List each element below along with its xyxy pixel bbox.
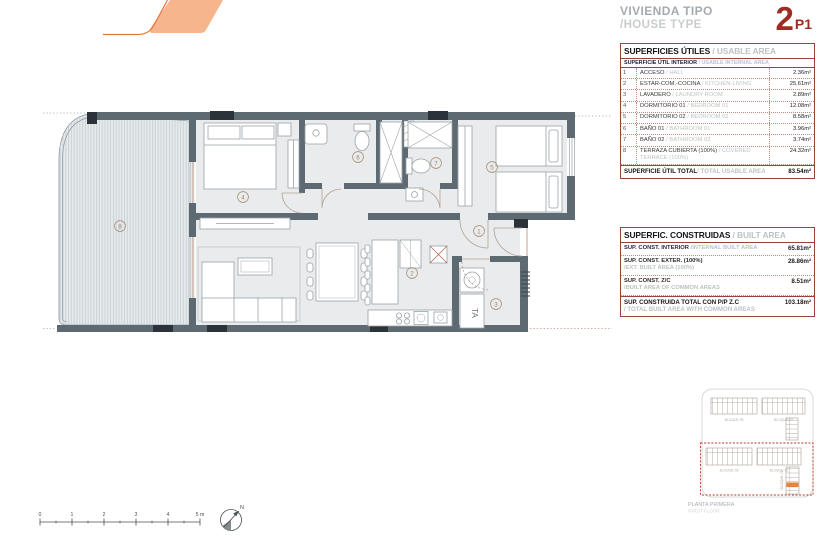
svg-text:3: 3 <box>494 301 498 308</box>
page-title-en: /HOUSE TYPE <box>620 19 713 32</box>
unit-badge: 2 P1 <box>776 5 812 33</box>
svg-text:BLOQUE 01: BLOQUE 01 <box>780 470 784 489</box>
brand-logo <box>103 0 223 35</box>
table-row: 3LAVADERO / LAUNDRY ROOM2.89m² <box>621 90 814 101</box>
table-row: 7BAÑO 02 / BATHROOM 023.74m² <box>621 135 814 146</box>
table-row: 5DORMITORIO 02 / BEDROOM 028.58m² <box>621 113 814 124</box>
usable-table-header: SUPERFICIES ÚTILES / USABLE AREA <box>621 44 814 59</box>
laundry-tag: TA <box>470 308 479 318</box>
terrace-window-2 <box>191 237 194 298</box>
site-caption-en: /FIRST FLOOR <box>688 509 720 514</box>
svg-text:1: 1 <box>71 512 74 518</box>
scale-bar: 0 1 2 3 4 5 m <box>39 512 205 526</box>
table-row: 1ACCESO / HALL2.36m² <box>621 68 814 79</box>
svg-text:5 m: 5 m <box>196 512 205 518</box>
floor-plan: TA 8 4 6 7 5 1 2 3 <box>43 111 612 332</box>
built-area-table: SUPERFIC. CONSTRUIDAS / BUILT AREA SUP. … <box>620 227 815 317</box>
svg-text:N: N <box>240 505 244 511</box>
svg-text:5: 5 <box>490 164 494 171</box>
highlighted-unit <box>787 483 799 488</box>
unit-number: 2 <box>776 5 794 33</box>
title-block: VIVIENDA TIPO /HOUSE TYPE 2 P1 <box>620 5 812 33</box>
site-key-plan: BLOQUE 05 BLOQUE 04 BLOQUE 03 BLOQUE 02 <box>688 389 813 514</box>
bedroom2-window <box>567 138 575 176</box>
unit-floor: P1 <box>795 16 812 32</box>
table-row: 2ESTAR-COM.-COCINA / KITCHEN-LIVING25.61… <box>621 79 814 90</box>
built-table-header: SUPERFIC. CONSTRUIDAS / BUILT AREA <box>621 228 814 243</box>
svg-text:7: 7 <box>434 160 438 167</box>
table-row: SUP. CONST. INTERIOR /INTERNAL BUILT ARE… <box>621 243 814 256</box>
svg-text:3: 3 <box>135 512 138 518</box>
svg-text:4: 4 <box>167 512 170 518</box>
usable-area-table: SUPERFICIES ÚTILES / USABLE AREA SUPERFI… <box>620 43 815 179</box>
site-block-05: BLOQUE 05 <box>711 398 757 422</box>
site-block-right <box>786 418 798 440</box>
north-arrow-icon: N <box>221 505 245 531</box>
site-block-03: BLOQUE 03 <box>706 448 752 473</box>
table-row: SUP. CONST. EXTER. (100%) /EXT. BUILT AR… <box>621 256 814 276</box>
table-row: 4DORMITORIO 01 / BEDROOM 0112.08m² <box>621 102 814 113</box>
svg-text:BLOQUE 03: BLOQUE 03 <box>720 469 739 473</box>
site-block-04: BLOQUE 04 <box>762 398 805 422</box>
svg-text:2: 2 <box>410 270 414 277</box>
plan-sheet: TA 8 4 6 7 5 1 2 3 <box>0 0 825 540</box>
table-row: SUP. CONST. Z/C /BUILT AREA OF COMMON AR… <box>621 276 814 296</box>
svg-text:8: 8 <box>118 223 122 230</box>
usable-table-subheader: SUPERFICIE ÚTIL INTERIOR / USABLE INTERN… <box>621 59 814 68</box>
svg-text:6: 6 <box>356 154 360 161</box>
site-caption-es: PLANTA PRIMERA <box>688 502 735 508</box>
site-block-01: BLOQUE 01 <box>780 467 799 494</box>
svg-text:4: 4 <box>241 194 245 201</box>
svg-text:BLOQUE 05: BLOQUE 05 <box>725 418 744 422</box>
built-table-total: SUP. CONSTRUIDA TOTAL CON P/P Z.C/ TOTAL… <box>621 296 814 316</box>
terrace-window-1 <box>191 162 194 203</box>
svg-text:1: 1 <box>477 228 481 235</box>
usable-table-total: SUPERFICIE ÚTIL TOTAL / TOTAL USABLE ARE… <box>621 165 814 178</box>
table-row: 6BAÑO 01 / BATHROOM 013.96m² <box>621 124 814 135</box>
page-title: VIVIENDA TIPO <box>620 5 713 19</box>
svg-text:2: 2 <box>103 512 106 518</box>
svg-text:0: 0 <box>39 512 42 518</box>
terrace <box>59 113 189 325</box>
table-row: 8TERRAZA CUBIERTA (100%) / COVERED TERRA… <box>621 147 814 165</box>
